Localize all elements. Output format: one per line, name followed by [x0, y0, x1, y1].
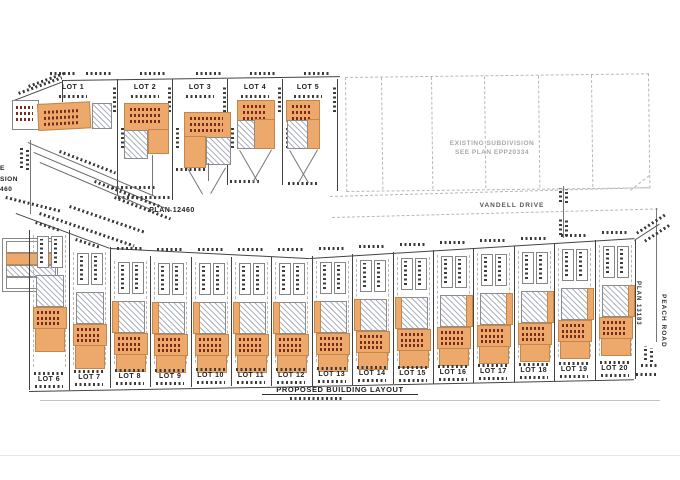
- dimension-noise: [480, 239, 506, 242]
- annotation-text-noise: [562, 330, 586, 333]
- annotation-text-noise: [320, 343, 344, 346]
- setback-text-noise: [131, 95, 159, 98]
- annotation-text-noise: [118, 348, 142, 351]
- building-side-strip: [506, 293, 513, 325]
- porch-outline: [51, 236, 63, 268]
- tick-text-noise: [559, 188, 562, 202]
- annotation-text-noise: [118, 343, 142, 346]
- bottom-lot-label: LOT 13: [314, 371, 350, 378]
- lot1-annex-outline: [12, 100, 39, 130]
- tick-text-noise: [418, 261, 421, 285]
- annotation-text-noise: [481, 329, 505, 332]
- annotation-text-noise: [16, 112, 33, 115]
- dimension-noise: [86, 72, 112, 75]
- building-side-strip: [152, 302, 159, 334]
- bottom-lot-label: LOT 15: [395, 370, 431, 377]
- bottom-lot-divider: [433, 250, 434, 384]
- tick-text-noise: [539, 255, 542, 279]
- tick-text-noise: [202, 266, 205, 290]
- bottom-lot-divider: [595, 240, 596, 380]
- annotation-text-noise: [603, 332, 627, 335]
- tick-text-noise: [444, 259, 447, 283]
- bottom-lot-divider: [69, 230, 70, 390]
- building-hatch: [561, 288, 589, 320]
- dimension-noise: [35, 385, 63, 388]
- porch-outline: [132, 262, 144, 294]
- building-hatch: [198, 302, 226, 334]
- annotation-text-noise: [292, 111, 312, 114]
- tick-text-noise: [176, 128, 179, 148]
- vandell-drive-label: VANDELL DRIVE: [462, 202, 562, 209]
- garage-footprint: [560, 341, 590, 359]
- garage-footprint: [439, 348, 469, 366]
- annotation-text-noise: [37, 322, 61, 325]
- yard-line: [65, 235, 66, 367]
- tick-text-noise: [282, 266, 285, 290]
- tick-text-noise: [620, 249, 623, 273]
- top-lot-label: LOT 5: [284, 84, 332, 91]
- dimension-noise: [319, 247, 345, 250]
- porch-outline: [199, 263, 211, 295]
- building-footprint-wing: [307, 119, 320, 149]
- garage-footprint: [75, 345, 105, 369]
- annotation-text-noise: [243, 111, 267, 114]
- building-hatch: [319, 301, 347, 333]
- setback-text-noise: [276, 368, 306, 371]
- setback-witness-line: [187, 168, 203, 194]
- building-hatch: [602, 285, 630, 317]
- annotation-text-noise: [37, 311, 61, 314]
- annotation-text-noise: [562, 324, 586, 327]
- dimension-noise: [140, 72, 166, 75]
- building-side-strip: [354, 299, 361, 331]
- top-lot-divider: [337, 79, 338, 191]
- setback-text-noise: [294, 95, 322, 98]
- bottom-lot-label: LOT 14: [354, 370, 390, 377]
- tick-text-noise: [363, 263, 366, 287]
- tick-text-noise: [296, 266, 299, 290]
- building-hatch: [117, 301, 145, 333]
- dimension-noise: [75, 383, 103, 386]
- tick-text-noise: [323, 265, 326, 289]
- subdivision-site-plan: PLAN 12460 EXISTING SUBDIVISION SEE PLAN…: [0, 0, 680, 480]
- bottom-lot-divider: [352, 254, 353, 385]
- porch-outline: [158, 263, 170, 295]
- annotation-text-noise: [481, 340, 505, 343]
- tick-text-noise: [94, 256, 97, 280]
- bottom-lot-label: LOT 10: [193, 372, 229, 379]
- building-hatch: [278, 302, 306, 334]
- building-side-strip: [628, 285, 635, 317]
- yard-line: [73, 252, 74, 365]
- tick-text-noise: [231, 128, 234, 148]
- peach-road-label: PEACH ROAD: [660, 294, 667, 348]
- tick-text-noise: [113, 86, 116, 112]
- porch-outline: [481, 254, 493, 286]
- bottom-lot-label: LOT 20: [597, 365, 633, 372]
- building-footprint-wing: [254, 119, 275, 149]
- annotation-text-noise: [199, 338, 223, 341]
- garage-footprint: [479, 346, 509, 364]
- page-bottom-rule: [0, 455, 680, 456]
- setback-text-noise: [317, 367, 347, 370]
- porch-outline: [360, 260, 372, 292]
- bottom-lot-label: LOT 11: [233, 372, 269, 379]
- building-footprint-wing: [184, 136, 206, 168]
- bottom-lot-divider: [554, 243, 555, 381]
- annotation-text-noise: [190, 123, 223, 126]
- left-edge-partial-text-2: SION: [0, 176, 18, 183]
- annotation-text-noise: [190, 117, 223, 120]
- tick-text-noise: [40, 239, 43, 263]
- building-side-strip: [587, 288, 594, 320]
- dimension-noise: [50, 72, 76, 75]
- annotation-text-noise: [522, 333, 546, 336]
- dimension-noise: [521, 237, 547, 240]
- tick-text-noise: [565, 252, 568, 276]
- peach-road-edge: [656, 208, 657, 342]
- bottom-lot-divider: [514, 246, 515, 382]
- bottom-lot-divider: [473, 248, 474, 383]
- top-lot-divider: [282, 79, 283, 185]
- tick-text-noise: [54, 239, 57, 263]
- tick-text-noise: [135, 265, 138, 289]
- annotation-text-noise: [603, 327, 627, 330]
- annotation-text-noise: [279, 344, 303, 347]
- annotation-text-noise: [118, 337, 142, 340]
- annotation-text-noise: [481, 335, 505, 338]
- yard-line: [152, 155, 153, 195]
- bottom-lot-divider: [29, 230, 30, 390]
- porch-outline: [213, 263, 225, 295]
- setback-text-noise: [357, 366, 387, 369]
- porch-outline: [536, 252, 548, 284]
- setback-text-noise: [59, 95, 87, 98]
- tick-text-noise: [498, 257, 501, 281]
- annotation-text-noise: [401, 333, 425, 336]
- building-side-strip: [314, 301, 321, 333]
- dimension-noise: [601, 374, 629, 377]
- existing-lot-line: [431, 77, 433, 189]
- building-side-strip: [112, 301, 119, 333]
- dimension-noise: [359, 245, 385, 248]
- bottom-lot-label: LOT 18: [516, 367, 552, 374]
- building-side-strip: [273, 302, 280, 334]
- tick-text-noise: [404, 261, 407, 285]
- annotation-text-noise: [603, 321, 627, 324]
- tick-text-noise: [80, 256, 83, 280]
- setback-witness-line: [239, 150, 259, 183]
- bottom-lot-label: LOT 17: [475, 368, 511, 375]
- dimension-noise: [399, 379, 427, 382]
- annotation-text-noise: [77, 334, 101, 337]
- top-lot-label: LOT 4: [231, 84, 279, 91]
- dimension-noise: [602, 231, 628, 234]
- building-hatch: [287, 120, 308, 149]
- annotation-text-noise: [239, 349, 263, 352]
- annotation-text-noise: [158, 344, 182, 347]
- tick-text-noise: [525, 255, 528, 279]
- setback-text-noise: [478, 364, 508, 367]
- tick-text-noise: [242, 266, 245, 290]
- dimension-noise: [117, 247, 143, 250]
- annotation-text-noise: [130, 120, 161, 123]
- building-hatch: [76, 292, 104, 324]
- dimension-noise: [636, 373, 658, 376]
- building-side-strip: [466, 295, 473, 327]
- tick-text-noise: [484, 257, 487, 281]
- yard-line: [33, 235, 34, 367]
- yard-line: [599, 245, 600, 356]
- annotation-text-noise: [320, 337, 344, 340]
- dimension-noise: [35, 221, 61, 232]
- porch-outline: [374, 260, 386, 292]
- building-hatch: [521, 291, 549, 323]
- road-edge-south: [332, 208, 658, 218]
- tick-text-noise: [606, 249, 609, 273]
- annotation-text-noise: [279, 349, 303, 352]
- annotation-text-noise: [320, 348, 344, 351]
- dimension-noise: [641, 364, 657, 367]
- tick-text-noise: [559, 219, 562, 235]
- building-hatch: [237, 120, 255, 149]
- annotation-text-noise: [239, 338, 263, 341]
- dimension-noise: [288, 182, 318, 185]
- top-lot-label: LOT 2: [121, 84, 169, 91]
- building-side-strip: [193, 302, 200, 334]
- setback-witness-line: [210, 168, 226, 194]
- top-lot-divider: [172, 79, 173, 200]
- setback-text-noise: [600, 361, 630, 364]
- setback-witness-line: [298, 150, 318, 183]
- existing-lot-line: [591, 75, 593, 187]
- building-side-strip: [395, 297, 402, 329]
- tick-text-noise: [565, 189, 568, 203]
- porch-outline: [37, 236, 49, 268]
- setback-text-noise: [559, 362, 589, 365]
- annotation-text-noise: [441, 342, 465, 345]
- dimension-noise: [439, 378, 467, 381]
- annotation-text-noise: [130, 108, 161, 111]
- annotation-text-noise: [199, 344, 223, 347]
- annotation-text-noise: [130, 114, 161, 117]
- porch-outline: [401, 258, 413, 290]
- setback-text-noise: [186, 95, 214, 98]
- bottom-lot-divider: [231, 257, 232, 386]
- dimension-noise: [156, 382, 184, 385]
- building-hatch: [400, 297, 428, 329]
- annotation-text-noise: [239, 344, 263, 347]
- building-hatch: [124, 130, 148, 159]
- annotation-text-noise: [441, 337, 465, 340]
- setback-text-noise: [236, 368, 266, 371]
- dimension-noise: [69, 205, 146, 234]
- dimension-noise: [116, 382, 144, 385]
- building-side-strip: [233, 302, 240, 334]
- bottom-lot-label: LOT 16: [435, 369, 471, 376]
- porch-outline: [77, 253, 89, 285]
- porch-outline: [239, 263, 251, 295]
- setback-text-noise: [74, 370, 104, 373]
- annotation-text-noise: [199, 349, 223, 352]
- bottom-lot-divider: [271, 257, 272, 386]
- annotation-text-noise: [401, 339, 425, 342]
- dimension-noise: [400, 243, 426, 246]
- setback-text-noise: [438, 365, 468, 368]
- porch-outline: [293, 263, 305, 295]
- annotation-text-noise: [243, 105, 267, 108]
- tick-text-noise: [161, 266, 164, 290]
- dimension-noise: [479, 377, 507, 380]
- top-lots-north-boundary: [62, 76, 340, 81]
- annotation-text-noise: [158, 338, 182, 341]
- annotation-text-noise: [360, 346, 384, 349]
- tick-text-noise: [333, 86, 336, 112]
- building-footprint-wing: [148, 129, 169, 154]
- annotation-text-noise: [279, 338, 303, 341]
- building-hatch: [157, 302, 185, 334]
- setback-text-noise: [519, 363, 549, 366]
- dimension-noise: [250, 72, 276, 75]
- annotation-text-noise: [77, 339, 101, 342]
- survey-line: [563, 186, 564, 238]
- dimension-noise: [358, 379, 386, 382]
- existing-subdivision-parcel: [345, 73, 650, 192]
- porch-outline: [522, 252, 534, 284]
- building-hatch: [36, 275, 64, 307]
- dimension-noise: [5, 196, 60, 212]
- dimension-noise: [520, 376, 548, 379]
- annotation-text-noise: [441, 331, 465, 334]
- garage-footprint: [35, 328, 65, 352]
- bottom-lot-divider: [635, 240, 636, 379]
- bottom-lot-label: LOT 9: [152, 373, 188, 380]
- left-edge-partial-text-3: 460: [0, 186, 12, 193]
- dimension-noise: [278, 248, 304, 251]
- porch-outline: [562, 249, 574, 281]
- garage-footprint: [601, 338, 631, 356]
- annotation-text-noise: [37, 317, 61, 320]
- porch-outline: [334, 262, 346, 294]
- dimension-noise: [197, 381, 225, 384]
- bottom-lot-label: LOT 7: [71, 374, 107, 381]
- bottom-lot-label: LOT 8: [112, 373, 148, 380]
- dimension-noise: [304, 72, 330, 75]
- existing-lot-line: [484, 76, 486, 188]
- top-lot-label: LOT 3: [176, 84, 224, 91]
- tick-text-noise: [458, 259, 461, 283]
- porch-outline: [91, 253, 103, 285]
- dimension-noise: [196, 72, 222, 75]
- porch-outline: [603, 246, 615, 278]
- setback-text-noise: [196, 368, 226, 371]
- layout-base-line: [40, 400, 660, 401]
- tick-text-noise: [175, 266, 178, 290]
- porch-outline: [118, 262, 130, 294]
- top-lot-label: LOT 1: [49, 84, 97, 91]
- dimension-noise: [440, 241, 466, 244]
- annotation-text-noise: [401, 344, 425, 347]
- dimension-noise: [237, 381, 265, 384]
- bottom-lot-label: LOT 19: [556, 366, 592, 373]
- annotation-text-noise: [16, 118, 33, 121]
- porch-outline: [495, 254, 507, 286]
- dimension-noise: [277, 381, 305, 384]
- annotation-text-noise: [190, 129, 223, 132]
- building-hatch: [440, 295, 468, 327]
- tick-text-noise: [256, 266, 259, 290]
- porch-outline: [455, 256, 467, 288]
- tick-text-noise: [644, 346, 647, 360]
- setback-text-noise: [34, 372, 64, 375]
- tick-text-noise: [377, 263, 380, 287]
- building-side-strip: [547, 291, 554, 323]
- porch-outline: [320, 262, 332, 294]
- dimension-noise: [198, 248, 224, 251]
- tick-text-noise: [337, 265, 340, 289]
- setback-text-noise: [398, 366, 428, 369]
- setback-text-noise: [115, 369, 145, 372]
- tick-text-noise: [579, 252, 582, 276]
- porch-outline: [576, 249, 588, 281]
- top-lot-divider: [117, 79, 118, 195]
- building-hatch: [359, 299, 387, 331]
- tick-text-noise: [216, 266, 219, 290]
- porch-outline: [279, 263, 291, 295]
- tick-text-noise: [121, 265, 124, 289]
- tick-text-noise: [20, 148, 23, 168]
- dimension-noise: [176, 168, 206, 171]
- building-hatch: [238, 302, 266, 334]
- annotation-text-noise: [562, 335, 586, 338]
- bottom-lot-divider: [150, 256, 151, 387]
- annotation-text-noise: [360, 335, 384, 338]
- annotation-text-noise: [16, 106, 33, 109]
- annotation-text-noise: [77, 328, 101, 331]
- dimension-noise: [238, 248, 264, 251]
- garage-footprint: [520, 344, 550, 362]
- existing-lot-line: [538, 76, 540, 188]
- porch-outline: [617, 246, 629, 278]
- setback-text-noise: [155, 369, 185, 372]
- dimension-noise: [59, 150, 116, 174]
- porch-outline: [172, 263, 184, 295]
- porch-outline: [441, 256, 453, 288]
- building-hatch: [206, 137, 231, 165]
- setback-witness-line: [252, 150, 272, 183]
- building-hatch: [92, 103, 112, 129]
- existing-lot-line: [381, 78, 383, 190]
- annotation-text-noise: [360, 341, 384, 344]
- building-hatch: [480, 293, 508, 325]
- dimension-noise: [560, 375, 588, 378]
- porch-outline: [253, 263, 265, 295]
- setback-text-noise: [241, 95, 269, 98]
- dimension-noise: [318, 380, 346, 383]
- dimension-noise: [157, 248, 183, 251]
- tick-text-noise: [26, 150, 29, 170]
- yard-line: [105, 252, 106, 365]
- porch-outline: [415, 258, 427, 290]
- annotation-text-noise: [158, 349, 182, 352]
- dimension-noise: [561, 234, 587, 237]
- yard-line: [208, 163, 209, 181]
- bottom-lot-label: LOT 12: [273, 372, 309, 379]
- bottom-lot-label: LOT 6: [31, 376, 67, 383]
- annotation-text-noise: [292, 105, 312, 108]
- tick-text-noise: [650, 348, 653, 362]
- title-underline: [262, 394, 418, 395]
